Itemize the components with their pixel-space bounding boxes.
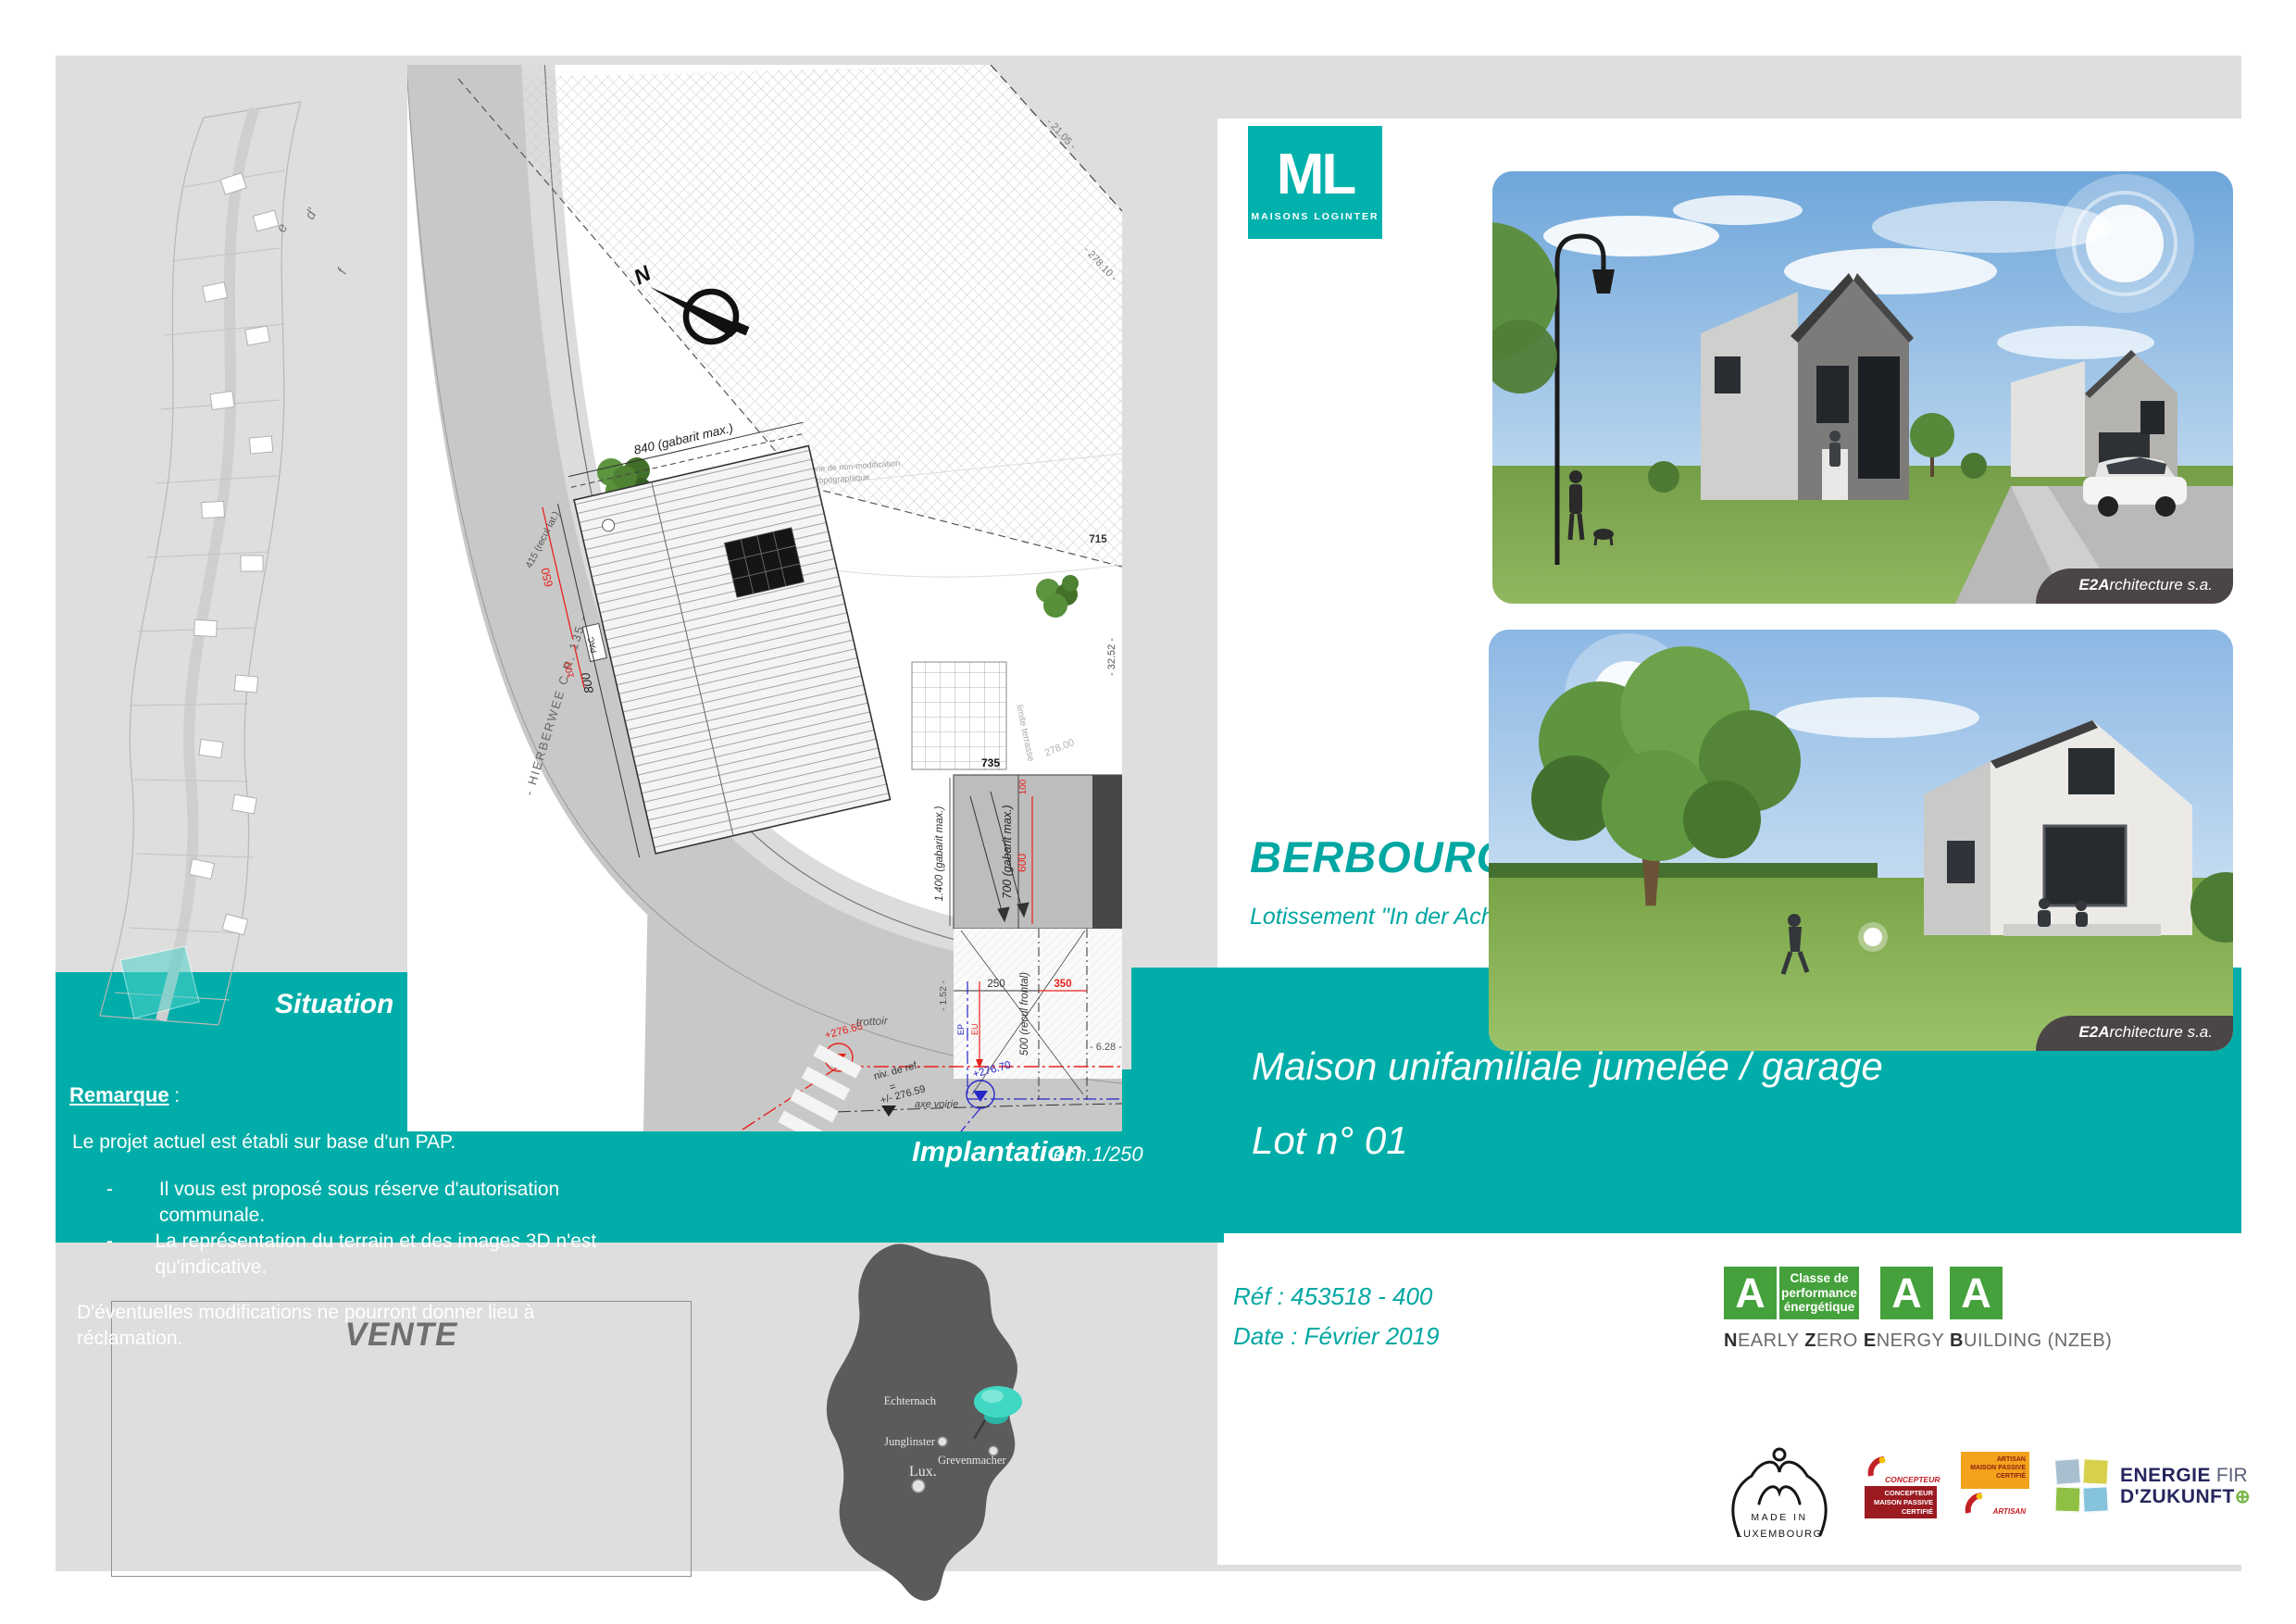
energie-square-icon — [2054, 1458, 2081, 1485]
dim-700: 700 (gabarit max.) — [1001, 805, 1014, 898]
credit-rest: rchitecture s.a. — [2110, 576, 2214, 593]
implantation-drawing: - HIERBERWEE C.R. 135 - N - 21.05 - - 27… — [407, 65, 1122, 1131]
bullet-text: La représentation du terrain et des imag… — [155, 1229, 643, 1280]
credit-bold: E2A — [2078, 1023, 2109, 1041]
nzeb-bold: Z — [1804, 1330, 1816, 1351]
energy-class-a-badge: A — [1880, 1267, 1933, 1319]
concepteur-badge-top: CONCEPTEUR — [1865, 1454, 1937, 1486]
dim-3252: - 32.52 - — [1106, 638, 1117, 676]
concepteur-badge-bottom: CONCEPTEUR MAISON PASSIVE CERTIFIÉ — [1865, 1486, 1937, 1518]
dim-350-red: 350 — [1054, 979, 1071, 990]
credit-rest: rchitecture s.a. — [2110, 1023, 2214, 1041]
concepteur-swoosh-icon — [1866, 1455, 1887, 1478]
render-scene-street — [1492, 171, 2233, 604]
energie-squares-icon — [2055, 1459, 2109, 1513]
city-label: Lux. — [909, 1464, 937, 1480]
concepteur-passive-house-badge: CONCEPTEUR CONCEPTEUR MAISON PASSIVE CER… — [1865, 1454, 1937, 1518]
remark-title: Remarque — [69, 1083, 169, 1106]
bullet-dash: - — [106, 1177, 159, 1228]
architect-credit: E2Architecture s.a. — [2036, 568, 2233, 604]
energie-wordmark: ENERGIE FIR D'ZUKUNFT⊕ — [2120, 1465, 2251, 1507]
situation-title: Situation — [275, 989, 393, 1020]
energie-square-icon — [2055, 1487, 2081, 1513]
nzeb-text: UILDING (NZEB) — [1964, 1330, 2112, 1351]
nzeb-text: ERO — [1816, 1330, 1864, 1351]
artisan-swoosh-icon — [1964, 1491, 1984, 1515]
terrace-grid — [912, 662, 1006, 769]
city-label: Junglinster — [884, 1435, 936, 1448]
concepteur-l3: CERTIFIÉ — [1865, 1507, 1933, 1517]
situation-parcel-band — [100, 102, 301, 1025]
house-type-line: Maison unifamiliale jumelée / garage — [1252, 1044, 1883, 1089]
concepteur-l2: MAISON PASSIVE — [1865, 1498, 1933, 1507]
dim-152: - 1.52 - — [938, 980, 949, 1011]
credit-bold: E2A — [2078, 576, 2109, 593]
front-yard — [954, 929, 1122, 1079]
energy-class-label: Classe de performance énergétique — [1779, 1267, 1859, 1319]
energie-r1: FIR — [2216, 1465, 2248, 1486]
reference-line: Réf : 453518 - 400 — [1233, 1282, 1432, 1311]
eu-label: EU — [970, 1023, 980, 1035]
dim-500: 500 (recul frontal) — [1019, 972, 1030, 1056]
date-line: Date : Février 2019 — [1233, 1322, 1440, 1351]
artisan-l2: MAISON PASSIVE — [1961, 1464, 2026, 1472]
dim-250: 250 — [987, 979, 1004, 990]
nzeb-bold: E — [1864, 1330, 1877, 1351]
nzeb-bold: N — [1724, 1330, 1738, 1351]
city-label: Echternach — [884, 1394, 937, 1407]
dim-715: 715 — [1089, 534, 1107, 545]
twin-house — [1092, 775, 1122, 929]
nzeb-text: EARLY — [1738, 1330, 1804, 1351]
luxembourg-map: Echternach Junglinster Grevenmacher Lux. — [785, 1239, 1055, 1609]
energie-square-icon — [2082, 1486, 2108, 1512]
energy-class-a-badge: A — [1950, 1267, 2003, 1319]
energy-class-l1: Classe de — [1790, 1271, 1848, 1286]
dim-100b-red: 100 — [1018, 779, 1029, 794]
artisan-l1: ARTISAN — [1961, 1455, 2026, 1464]
artisan-passive-house-badge: ARTISAN MAISON PASSIVE CERTIFIÉ ARTISAN — [1961, 1452, 2029, 1518]
lamp-glow — [1858, 922, 1888, 952]
lot-line: Lot n° 01 — [1252, 1118, 1408, 1163]
remark-bullets: - Il vous est proposé sous réserve d'aut… — [106, 1177, 643, 1280]
render-photo-street: E2Architecture s.a. — [1492, 171, 2233, 604]
energie-fir-zukunft-logo: ENERGIE FIR D'ZUKUNFT⊕ — [2055, 1459, 2251, 1513]
situation-letter-f: f — [334, 265, 351, 277]
remark-bullet-2: - La représentation du terrain et des im… — [106, 1229, 643, 1280]
energie-b1: ENERGIE — [2120, 1465, 2211, 1486]
dim-628: - 6.28 - — [1090, 1042, 1122, 1053]
artisan-badge-bottom: ARTISAN — [1961, 1489, 2029, 1518]
situation-section-letters: e d' f — [273, 205, 351, 276]
project-subdivision: Lotissement "In der Acht" — [1250, 904, 1508, 931]
maisons-loginter-logo: ML MAISONS LOGINTER — [1248, 126, 1382, 239]
artisan-badge-top: ARTISAN MAISON PASSIVE CERTIFIÉ — [1961, 1452, 2029, 1489]
project-city: BERBOURG — [1250, 831, 1511, 882]
artisan-bottom-label: ARTISAN — [1993, 1507, 2026, 1516]
situation-plan-drawing: e d' f — [65, 67, 430, 1081]
trottoir-label: trottoir — [855, 1014, 889, 1029]
implantation-scale: éch.1/250 — [1054, 1143, 1143, 1167]
ml-logo-name: MAISONS LOGINTER — [1251, 211, 1379, 222]
energy-class-badges: A Classe de performance énergétique A A — [1724, 1267, 2003, 1319]
ml-logo-letters: ML — [1277, 146, 1354, 204]
nzeb-text: NERGY — [1877, 1330, 1950, 1351]
brochure-page: e d' f Situation — [0, 0, 2296, 1624]
situation-highlighted-lot — [120, 946, 199, 1018]
person-near-house — [1829, 431, 1841, 467]
cloud — [1776, 697, 1979, 738]
dim-1400: 1.400 (gabarit max.) — [934, 806, 945, 901]
concepteur-l1: CONCEPTEUR — [1865, 1489, 1933, 1498]
architect-credit: E2Architecture s.a. — [2036, 1016, 2233, 1051]
nzeb-bold: B — [1950, 1330, 1964, 1351]
made-in-text: MADE IN — [1751, 1512, 1807, 1523]
remark-bullet-1: - Il vous est proposé sous réserve d'aut… — [106, 1177, 643, 1228]
certification-logos: MADE IN LUXEMBOURG CONCEPTEUR CONCEPTEUR… — [1724, 1446, 2251, 1550]
situation-letter-d: d' — [302, 205, 321, 221]
energy-class-l3: énergétique — [1784, 1300, 1855, 1315]
dim-600-red: 600 — [1016, 854, 1029, 872]
sun-glare — [2055, 174, 2194, 313]
luxembourg-text: LUXEMBOURG — [1736, 1529, 1822, 1540]
energy-class-a-badge: A — [1724, 1267, 1777, 1319]
render-photo-garden: E2Architecture s.a. — [1489, 630, 2233, 1051]
implantation-sheet: - HIERBERWEE C.R. 135 - N - 21.05 - - 27… — [407, 65, 1122, 1131]
concepteur-top-label: CONCEPTEUR — [1885, 1475, 1940, 1484]
artisan-l3: CERTIFIÉ — [1961, 1472, 2026, 1480]
bullet-text: Il vous est proposé sous réserve d'autor… — [159, 1177, 643, 1228]
remark-intro: Le projet actuel est établi sur base d'u… — [72, 1130, 643, 1156]
energie-plus-icon: ⊕ — [2235, 1487, 2251, 1507]
energie-square-icon — [2082, 1458, 2108, 1484]
remark-outro: D'éventuelles modifications ne pourront … — [77, 1300, 643, 1351]
remark-block: Remarque : Le projet actuel est établi s… — [69, 1081, 643, 1352]
dim-735: 735 — [981, 756, 1000, 769]
energy-class-l2: performance — [1781, 1286, 1857, 1301]
nzeb-line: NEARLY ZERO ENERGY BUILDING (NZEB) — [1724, 1330, 2112, 1352]
energie-b2: D'ZUKUNFT — [2120, 1486, 2235, 1507]
made-in-luxembourg-crown-icon: MADE IN LUXEMBOURG — [1724, 1446, 1835, 1550]
bullet-dash: - — [106, 1229, 155, 1280]
axe-voirie-label: axe voirie — [915, 1099, 958, 1110]
remark-colon: : — [169, 1085, 181, 1106]
remark-title-line: Remarque : — [69, 1081, 643, 1109]
city-label: Grevenmacher — [938, 1454, 1006, 1467]
render-scene-garden — [1489, 630, 2233, 1051]
ep-label: EP — [956, 1024, 966, 1035]
